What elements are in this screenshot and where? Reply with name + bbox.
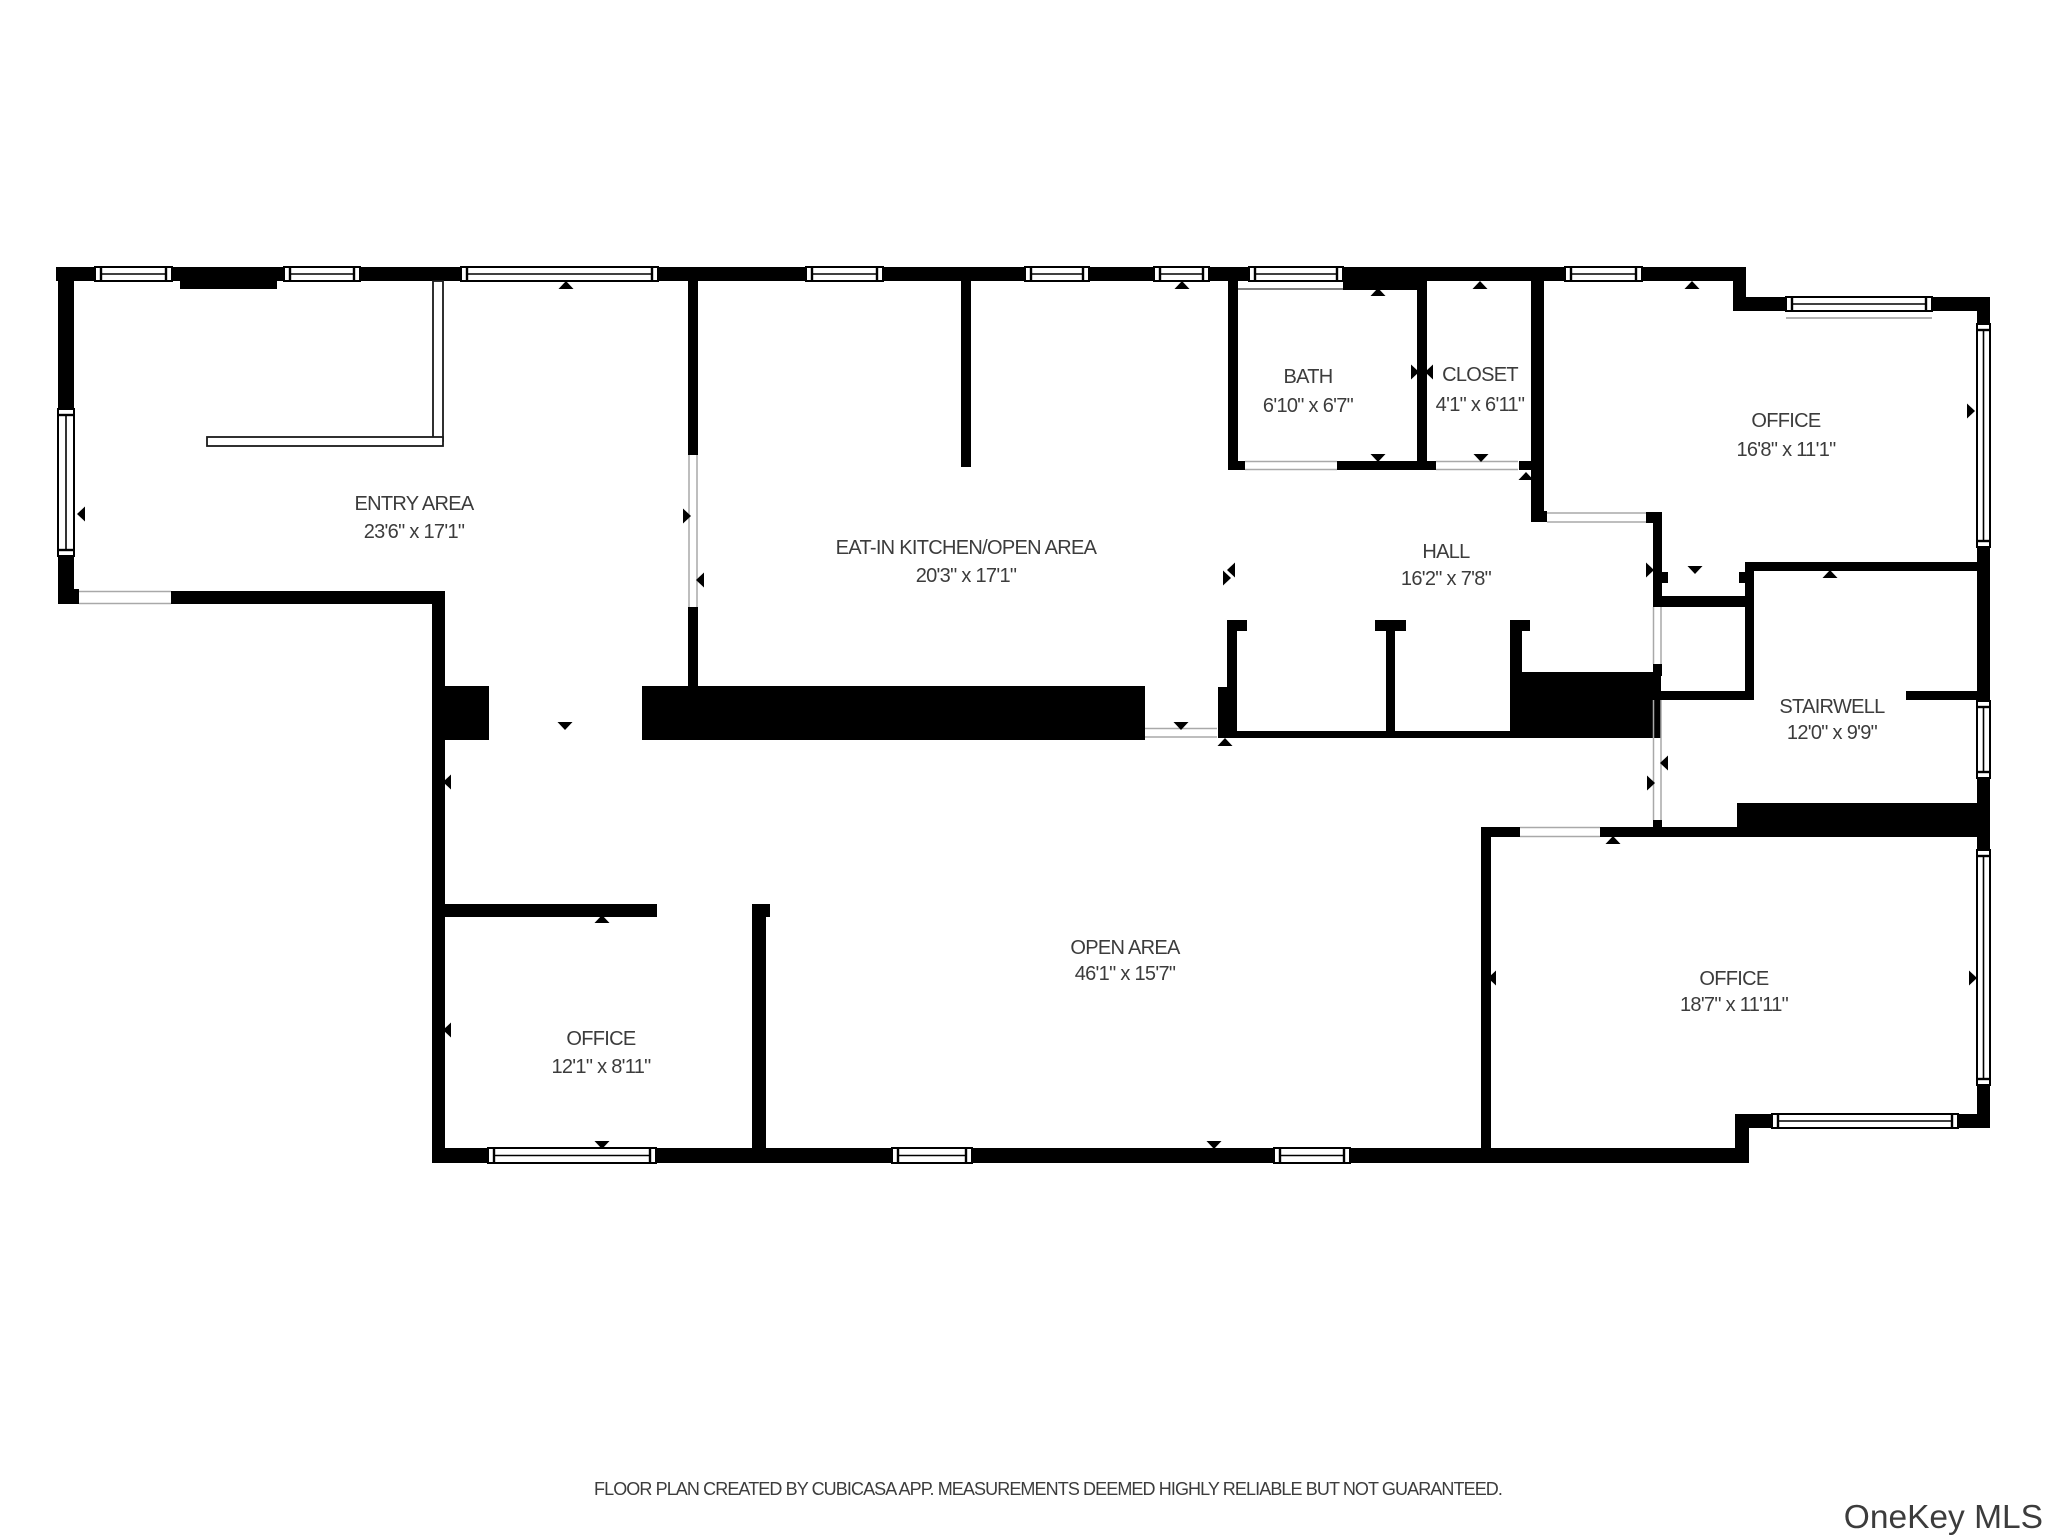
svg-text:OFFICE: OFFICE <box>1751 410 1820 432</box>
svg-text:12'1" x 8'11": 12'1" x 8'11" <box>551 1056 651 1078</box>
svg-text:FLOOR PLAN CREATED BY CUBICASA: FLOOR PLAN CREATED BY CUBICASA APP. MEAS… <box>594 1479 1502 1499</box>
svg-text:46'1" x 15'7": 46'1" x 15'7" <box>1075 963 1176 985</box>
svg-text:OneKey MLS: OneKey MLS <box>1844 1499 2043 1536</box>
svg-text:EAT-IN KITCHEN/OPEN AREA: EAT-IN KITCHEN/OPEN AREA <box>836 537 1098 559</box>
svg-text:16'2" x 7'8": 16'2" x 7'8" <box>1401 568 1492 590</box>
svg-text:BATH: BATH <box>1283 366 1332 388</box>
svg-text:4'1" x 6'11": 4'1" x 6'11" <box>1436 394 1525 416</box>
svg-text:16'8" x 11'1": 16'8" x 11'1" <box>1736 439 1836 461</box>
svg-text:HALL: HALL <box>1422 541 1470 563</box>
svg-text:23'6" x 17'1": 23'6" x 17'1" <box>364 521 465 543</box>
svg-text:20'3" x 17'1": 20'3" x 17'1" <box>916 565 1017 587</box>
svg-text:ENTRY AREA: ENTRY AREA <box>355 493 475 515</box>
svg-text:18'7" x 11'11": 18'7" x 11'11" <box>1680 994 1789 1016</box>
svg-text:6'10" x 6'7": 6'10" x 6'7" <box>1263 395 1354 417</box>
svg-text:OFFICE: OFFICE <box>1699 968 1768 990</box>
svg-text:OFFICE: OFFICE <box>566 1028 635 1050</box>
svg-text:12'0" x 9'9": 12'0" x 9'9" <box>1787 722 1878 744</box>
svg-text:CLOSET: CLOSET <box>1442 364 1518 386</box>
svg-text:OPEN AREA: OPEN AREA <box>1070 937 1181 959</box>
svg-text:STAIRWELL: STAIRWELL <box>1779 696 1885 718</box>
